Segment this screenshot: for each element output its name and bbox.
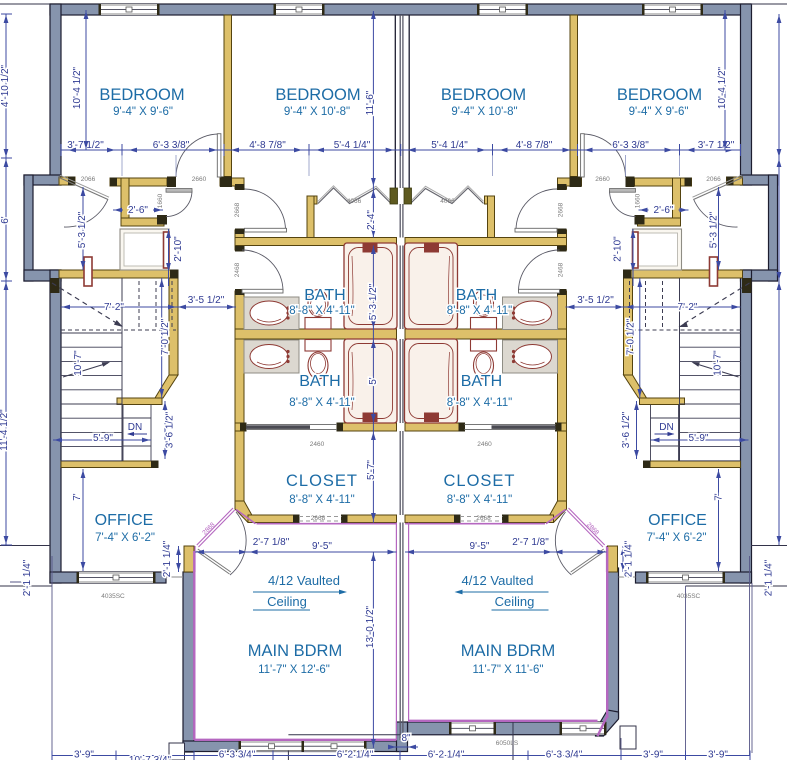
svg-text:1660: 1660 — [635, 193, 642, 208]
svg-text:2668: 2668 — [311, 515, 326, 522]
svg-text:8'-8" X 4'-11": 8'-8" X 4'-11" — [447, 397, 512, 409]
svg-text:MAIN BDRM: MAIN BDRM — [461, 642, 555, 660]
svg-text:4035SC: 4035SC — [101, 593, 125, 600]
svg-text:BEDROOM: BEDROOM — [441, 86, 526, 104]
svg-text:8'-8" X 4'-11": 8'-8" X 4'-11" — [447, 494, 512, 506]
svg-text:8'-8" X 4'-11": 8'-8" X 4'-11" — [289, 494, 354, 506]
svg-text:11'-6": 11'-6" — [365, 90, 376, 115]
svg-text:2'-6": 2'-6" — [654, 205, 674, 216]
svg-text:8'-8" X 4'-11": 8'-8" X 4'-11" — [289, 397, 354, 409]
svg-text:2'-1 1/4": 2'-1 1/4" — [764, 559, 775, 596]
svg-text:6'-3 3/4": 6'-3 3/4" — [546, 750, 583, 760]
svg-text:5': 5' — [368, 377, 379, 385]
svg-text:OFFICE: OFFICE — [648, 512, 707, 529]
svg-text:DN: DN — [128, 422, 142, 433]
svg-text:2'-1 1/4": 2'-1 1/4" — [624, 540, 635, 577]
svg-text:4035SC: 4035SC — [677, 593, 701, 600]
svg-text:Ceiling: Ceiling — [267, 594, 307, 609]
svg-text:4'-8 7/8": 4'-8 7/8" — [249, 140, 286, 151]
svg-text:9'-4" X 10'-8": 9'-4" X 10'-8" — [284, 106, 350, 118]
svg-text:BEDROOM: BEDROOM — [275, 86, 360, 104]
svg-text:BATH: BATH — [304, 287, 345, 304]
svg-text:2468: 2468 — [558, 262, 565, 277]
svg-text:2468: 2468 — [234, 262, 241, 277]
svg-text:3'-9": 3'-9" — [74, 750, 94, 760]
svg-text:4/12 Vaulted: 4/12 Vaulted — [461, 573, 533, 588]
svg-text:MAIN BDRM: MAIN BDRM — [248, 642, 342, 660]
svg-text:8": 8" — [401, 733, 411, 744]
svg-text:5'-9": 5'-9" — [93, 433, 113, 444]
svg-text:2066: 2066 — [706, 176, 721, 183]
svg-text:3'-6 1/2": 3'-6 1/2" — [621, 411, 632, 448]
svg-text:CLOSET: CLOSET — [286, 472, 358, 490]
svg-text:2'-10": 2'-10" — [173, 236, 184, 262]
svg-text:10'-7": 10'-7" — [73, 350, 84, 376]
svg-text:7': 7' — [72, 493, 83, 501]
svg-text:4'-8 7/8": 4'-8 7/8" — [516, 140, 553, 151]
svg-text:7'-4" X 6'-2": 7'-4" X 6'-2" — [95, 532, 155, 544]
svg-text:2'-1 1/4": 2'-1 1/4" — [162, 540, 173, 577]
svg-text:4066: 4066 — [440, 198, 455, 205]
svg-text:2668: 2668 — [558, 202, 565, 217]
svg-text:9'-5": 9'-5" — [470, 541, 490, 552]
svg-text:7'-0 1/2": 7'-0 1/2" — [626, 318, 637, 355]
svg-text:6'-2 1/4": 6'-2 1/4" — [337, 750, 374, 760]
svg-text:7'-2": 7'-2" — [104, 302, 124, 313]
svg-text:3'-5 1/2": 3'-5 1/2" — [188, 295, 225, 306]
svg-text:2'-1 1/4": 2'-1 1/4" — [22, 559, 33, 596]
svg-text:10'-7": 10'-7" — [713, 350, 724, 376]
svg-text:4/12 Vaulted: 4/12 Vaulted — [268, 573, 340, 588]
svg-text:5'-3 1/2": 5'-3 1/2" — [368, 283, 379, 320]
svg-text:5'-3 1/2": 5'-3 1/2" — [77, 211, 88, 248]
svg-text:10'-4 1/2": 10'-4 1/2" — [72, 66, 83, 109]
svg-text:8'-8" X 4'-11": 8'-8" X 4'-11" — [289, 305, 354, 317]
svg-text:3'-7 1/2": 3'-7 1/2" — [698, 140, 735, 151]
svg-text:2460: 2460 — [477, 441, 492, 448]
svg-text:5'-3 1/2": 5'-3 1/2" — [709, 211, 720, 248]
svg-text:BATH: BATH — [456, 287, 497, 304]
svg-text:2'-6": 2'-6" — [128, 205, 148, 216]
svg-text:BATH: BATH — [299, 373, 340, 390]
svg-text:2'-10": 2'-10" — [613, 236, 624, 262]
svg-text:3'-5 1/2": 3'-5 1/2" — [577, 295, 614, 306]
svg-text:9'-5": 9'-5" — [312, 541, 332, 552]
svg-text:5'-7": 5'-7" — [366, 460, 377, 480]
svg-text:7': 7' — [714, 493, 725, 501]
svg-text:2660: 2660 — [595, 176, 610, 183]
svg-text:4066: 4066 — [347, 198, 362, 205]
svg-text:6'-3 3/8": 6'-3 3/8" — [612, 140, 649, 151]
svg-text:6050LS: 6050LS — [496, 740, 519, 747]
svg-text:2668: 2668 — [476, 515, 491, 522]
svg-text:BATH: BATH — [461, 373, 502, 390]
svg-text:9'-4" X 10'-8": 9'-4" X 10'-8" — [451, 106, 517, 118]
svg-text:2'-7 1/8": 2'-7 1/8" — [253, 537, 290, 548]
svg-text:3'-9": 3'-9" — [708, 750, 728, 760]
svg-text:OFFICE: OFFICE — [95, 512, 154, 529]
svg-text:6': 6' — [0, 216, 11, 224]
svg-text:2660: 2660 — [192, 176, 207, 183]
svg-text:3'-6 1/2": 3'-6 1/2" — [165, 411, 176, 448]
svg-text:13'-0 1/2": 13'-0 1/2" — [365, 605, 376, 648]
svg-text:2'-7 1/8": 2'-7 1/8" — [512, 537, 549, 548]
svg-text:2066: 2066 — [81, 176, 96, 183]
svg-text:6'-3 3/8": 6'-3 3/8" — [153, 140, 190, 151]
svg-text:2'-4": 2'-4" — [366, 210, 377, 230]
svg-text:3'-9": 3'-9" — [643, 750, 663, 760]
svg-text:1660: 1660 — [157, 193, 164, 208]
svg-text:CLOSET: CLOSET — [443, 472, 515, 490]
svg-text:8'-8" X 4'-11": 8'-8" X 4'-11" — [447, 305, 512, 317]
svg-text:9'-4" X 9'-6": 9'-4" X 9'-6" — [113, 106, 173, 118]
svg-text:5'-4 1/4": 5'-4 1/4" — [431, 140, 468, 151]
svg-text:7'-4" X 6'-2": 7'-4" X 6'-2" — [647, 532, 707, 544]
svg-text:BEDROOM: BEDROOM — [99, 86, 184, 104]
svg-text:7'-2": 7'-2" — [678, 302, 698, 313]
svg-text:11'-7" X 12'-6": 11'-7" X 12'-6" — [258, 664, 330, 676]
svg-text:5'-4 1/4": 5'-4 1/4" — [334, 140, 371, 151]
svg-text:2668: 2668 — [234, 202, 241, 217]
svg-text:10'-4 1/2": 10'-4 1/2" — [717, 66, 728, 109]
svg-text:9'-4" X 9'-6": 9'-4" X 9'-6" — [629, 106, 689, 118]
svg-text:7'-0 1/2": 7'-0 1/2" — [160, 318, 171, 355]
svg-text:Ceiling: Ceiling — [495, 594, 535, 609]
svg-text:4'-10 1/2": 4'-10 1/2" — [0, 64, 11, 107]
svg-text:11'-7" X 11'-6": 11'-7" X 11'-6" — [473, 664, 544, 676]
svg-text:6'-2 1/4": 6'-2 1/4" — [428, 750, 465, 760]
svg-text:2460: 2460 — [310, 441, 325, 448]
svg-text:6'-3 3/4": 6'-3 3/4" — [219, 750, 256, 760]
svg-text:BEDROOM: BEDROOM — [617, 86, 702, 104]
svg-text:10'-7 3/4": 10'-7 3/4" — [129, 755, 172, 760]
svg-text:5'-9": 5'-9" — [689, 433, 709, 444]
svg-text:11'-4 1/2": 11'-4 1/2" — [0, 409, 10, 451]
svg-text:DN: DN — [659, 422, 673, 433]
